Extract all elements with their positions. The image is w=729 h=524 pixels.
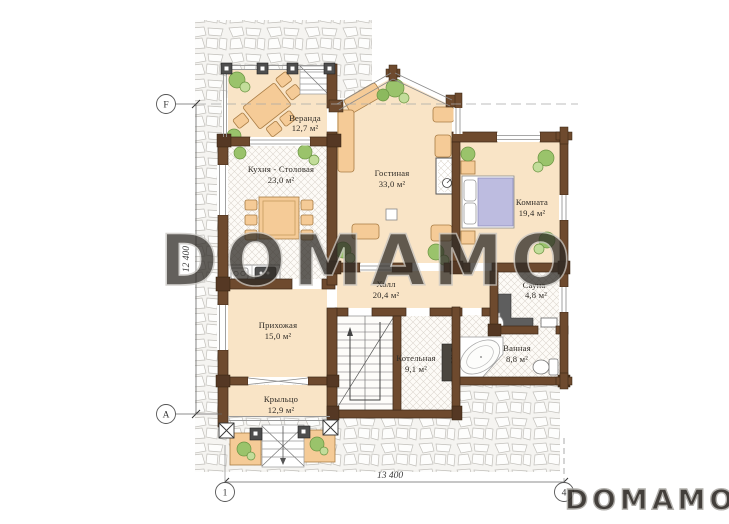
room-area-veranda: 12,7 м² [292,123,319,133]
room-area-boiler: 9,1 м² [405,364,427,374]
room-area-entry: 15,0 м² [265,331,292,341]
watermark-center: DOMAMO [160,220,579,302]
window [250,138,310,146]
plant [234,147,246,159]
axis-marker-1: 1 [216,483,235,502]
plant [461,147,475,161]
room-area-living: 33,0 м² [379,179,406,189]
room-label-veranda: Веранда [289,113,321,123]
french-door [248,378,308,385]
room-label-kitchen: Кухня - Столовая [248,164,314,174]
room-label-porch: Крыльцо [264,394,298,404]
room-label-living: Гостиная [375,168,410,178]
room-area-porch: 12,9 м² [268,405,295,415]
floor-plan-canvas: Ø400 [0,0,729,524]
window [559,195,569,220]
room-label-boiler: Котельная [396,353,435,363]
room-area-kitchen: 23,0 м² [268,175,295,185]
toilet [533,359,558,375]
sauna-heater [541,318,557,327]
floor-plan-page: Ø400 [0,0,729,524]
living-armchair-2 [435,135,451,157]
window [217,165,228,215]
room-label-bedroom: Комната [516,197,548,207]
nightstand-1 [461,161,475,174]
room-label-bath: Ванная [503,343,531,353]
svg-text:A: A [163,411,170,421]
window [217,305,228,350]
window [497,133,540,142]
room-label-entry: Прихожая [259,320,297,330]
window [454,108,463,134]
brand-logo: DOMAMO [565,483,729,516]
axis-marker-f: F [157,95,197,114]
room-area-bedroom: 19,4 м² [519,208,546,218]
svg-text:F: F [163,101,168,111]
svg-text:1: 1 [223,489,228,499]
horizontal-dimension-text: 13 400 [377,471,403,481]
room-area-bath: 8,8 м² [506,354,528,364]
coffee-table [386,209,397,220]
living-armchair-1 [433,107,454,122]
